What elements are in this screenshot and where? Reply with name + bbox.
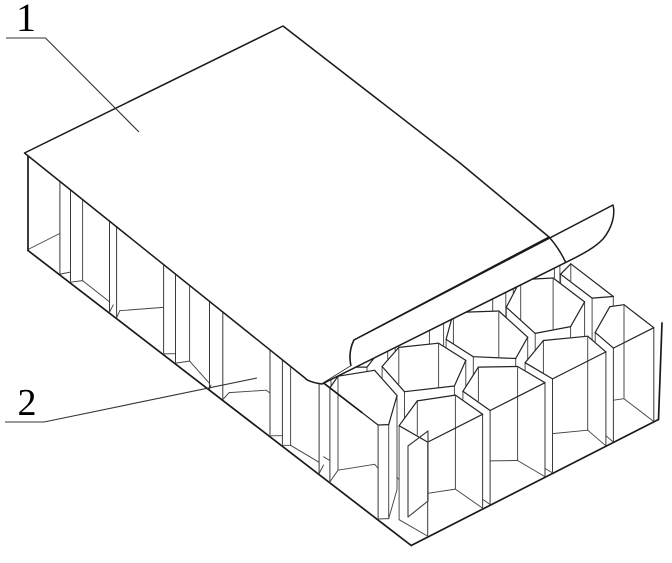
svg-text:1: 1 <box>16 0 36 40</box>
svg-text:2: 2 <box>18 382 37 424</box>
